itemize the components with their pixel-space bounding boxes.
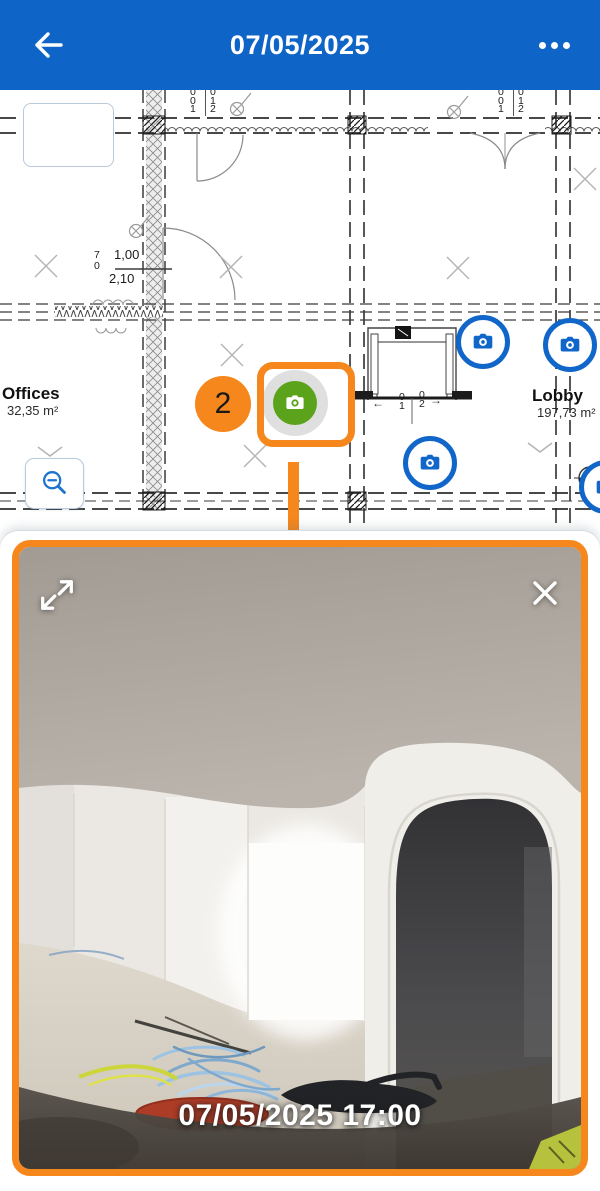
room-area: 32,35 m² — [2, 404, 60, 419]
expand-icon — [43, 582, 72, 608]
door-tag-bottom: 0 — [94, 260, 100, 272]
panorama-image — [19, 547, 581, 1169]
more-options-button[interactable] — [532, 23, 576, 67]
camera-icon — [417, 450, 443, 476]
left-arrow-glyph: ← — [372, 396, 384, 410]
photo-marker[interactable] — [403, 436, 457, 490]
photo-marker[interactable] — [543, 318, 597, 372]
back-arrow-icon — [28, 27, 64, 63]
camera-icon — [557, 332, 583, 358]
elevator-ticks: 02 — [419, 391, 425, 408]
tick-divider — [513, 90, 514, 116]
page-title: 07/05/2025 — [0, 30, 600, 61]
photo-timestamp: 07/05/2025 17:00 — [19, 1099, 581, 1133]
photo-marker[interactable] — [456, 315, 510, 369]
room-name: Lobby — [532, 386, 596, 406]
door-width-dimension: 1,00 — [114, 247, 139, 262]
photo-frame: 07/05/2025 17:00 — [12, 540, 588, 1176]
close-button[interactable] — [525, 573, 565, 613]
zoom-out-icon — [38, 467, 72, 501]
floorplan-canvas[interactable]: Offices 32,35 m² Lobby 197,73 m² 1,00 2,… — [0, 90, 600, 533]
scale-ticks: 001 — [190, 90, 196, 114]
back-button[interactable] — [24, 23, 68, 67]
room-name: Offices — [2, 384, 60, 404]
expand-button[interactable] — [35, 573, 79, 617]
camera-icon — [593, 474, 600, 500]
photo-preview-sheet: 07/05/2025 17:00 — [0, 531, 600, 1191]
room-label-lobby: Lobby 197,73 m² — [532, 386, 596, 420]
tick-divider — [205, 90, 206, 116]
step-number-badge: 2 — [195, 376, 251, 432]
panorama-photo[interactable]: 07/05/2025 17:00 — [19, 547, 581, 1169]
ellipsis-icon — [539, 42, 570, 49]
zoom-out-button[interactable] — [25, 458, 84, 509]
scale-ticks: 001 — [498, 90, 504, 114]
elevator-ticks: 01 — [399, 393, 405, 410]
top-bar: 07/05/2025 — [0, 0, 600, 90]
door-height-dimension: 2,10 — [109, 271, 134, 286]
scale-ticks: 012 — [210, 90, 216, 114]
room-area: 197,73 m² — [532, 406, 596, 421]
scale-ticks: 012 — [518, 90, 524, 114]
camera-icon — [470, 329, 496, 355]
plan-note-box — [23, 103, 114, 167]
highlight-box — [257, 362, 355, 447]
close-icon — [535, 583, 555, 603]
room-label-offices: Offices 32,35 m² — [2, 384, 60, 418]
right-arrow-glyph: → — [430, 393, 442, 407]
pointer-arrow — [288, 462, 299, 533]
